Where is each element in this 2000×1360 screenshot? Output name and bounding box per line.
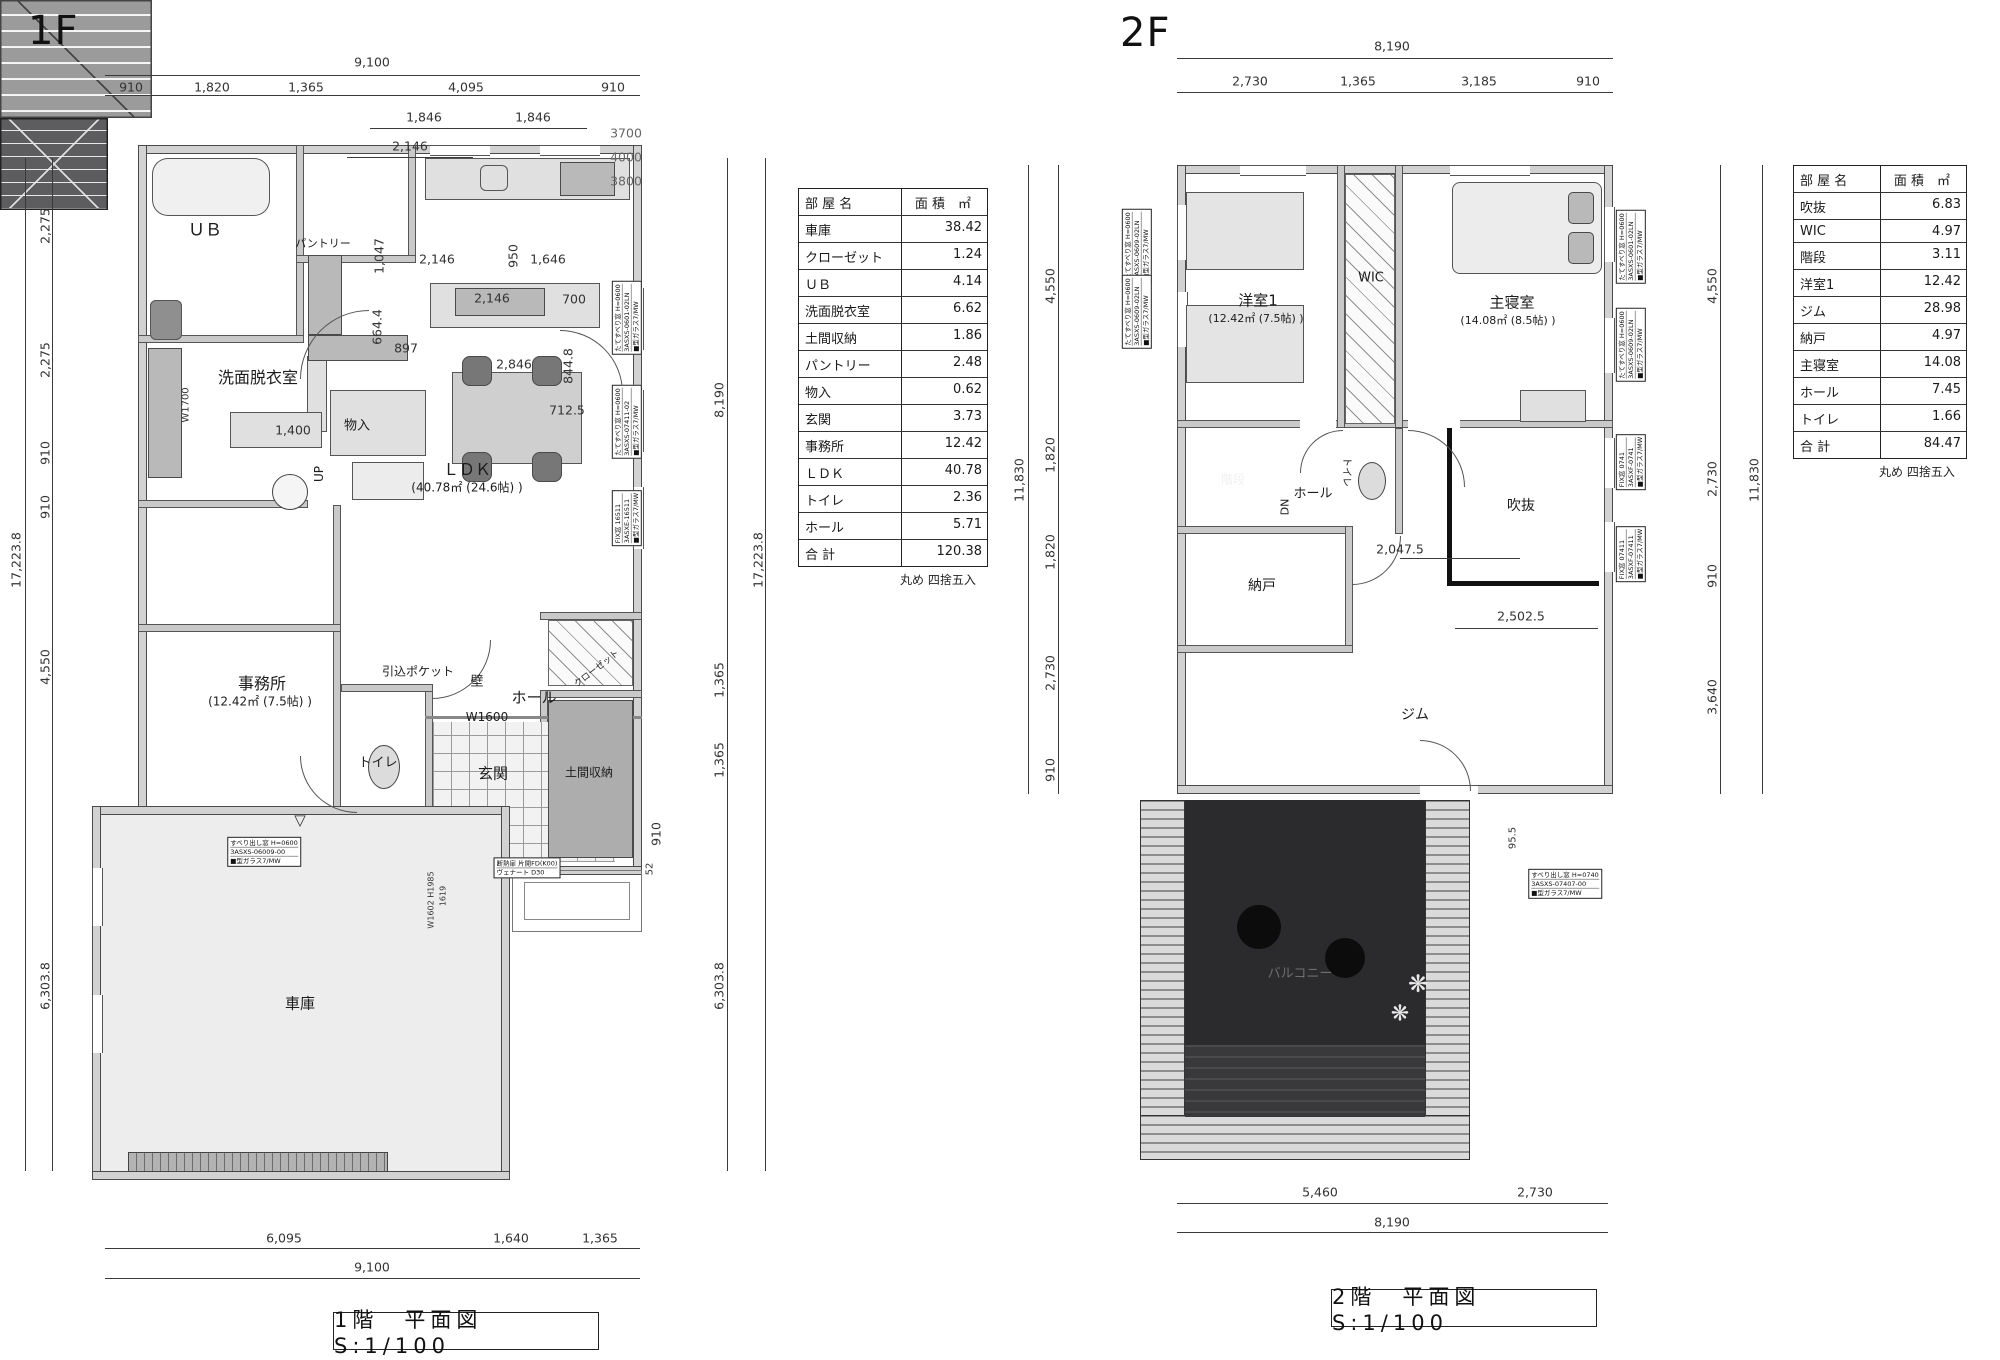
room-label: 洗面脱衣室 — [218, 364, 298, 388]
room-name-cell: 階段 — [1794, 243, 1881, 269]
floor2-title-block: 2階 平面図 S:1/100 — [1331, 1289, 1597, 1327]
area-value-cell: 38.42 — [902, 216, 987, 242]
area-value-cell: 2.36 — [902, 486, 987, 512]
dimension-label: 11,830 — [1747, 458, 1762, 502]
dimension-label: 2,730 — [1517, 1185, 1553, 1200]
room-name-cell: トイレ — [1794, 405, 1881, 431]
porch-step — [524, 882, 630, 920]
window — [1240, 165, 1306, 176]
room-label: ＵＢ — [188, 216, 222, 241]
door-arc — [1352, 536, 1401, 585]
dimension-line — [1177, 1203, 1608, 1204]
window — [1604, 207, 1615, 262]
dimension-label: 2,275 — [38, 208, 53, 244]
wall — [138, 145, 147, 813]
bathtub — [152, 158, 270, 216]
dimension-label: 4,550 — [1705, 268, 1720, 304]
room-name-cell: 部 屋 名 — [799, 189, 902, 215]
floor1-heading: 1F — [28, 8, 78, 54]
table-row: 納戸4.97 — [1794, 323, 1966, 350]
dimension-line — [105, 1278, 640, 1279]
table-row: 階段3.11 — [1794, 242, 1966, 269]
wic-closet — [1345, 174, 1395, 424]
area-value-cell: 84.47 — [1881, 432, 1966, 458]
bed — [1186, 192, 1304, 270]
balcony-rail-right — [1425, 800, 1470, 1160]
area-value-cell: 3.73 — [902, 405, 987, 431]
table-row: 車庫38.42 — [799, 215, 987, 242]
area-value-cell: 1.66 — [1881, 405, 1966, 431]
window-spec-tag: たてすべり窓 H=06003ASXS-0609-02LN■型ガラス7/MW — [1616, 308, 1646, 382]
dimension-label: 2,730 — [1043, 655, 1058, 691]
area-value-cell: 1.24 — [902, 243, 987, 269]
dimension-label: 4,550 — [1043, 268, 1058, 304]
pillow — [1568, 232, 1594, 264]
dimension-line — [1177, 1232, 1608, 1233]
table-row: 洗面脱衣室6.62 — [799, 296, 987, 323]
dimension-label: 52 — [645, 863, 656, 876]
table-row: クローゼット1.24 — [799, 242, 987, 269]
stove — [560, 162, 615, 196]
table-row: 洋室112.42 — [1794, 269, 1966, 296]
door-arc — [1408, 430, 1465, 487]
area-value-cell: 2.48 — [902, 351, 987, 377]
table-row: ホール7.45 — [1794, 377, 1966, 404]
wall — [92, 1171, 510, 1180]
bed — [1186, 305, 1304, 383]
sink — [480, 165, 508, 191]
garage-shutter — [128, 1152, 388, 1172]
dimension-label: 1,365 — [712, 742, 727, 778]
dimension-label: 910 — [1705, 564, 1720, 588]
wall — [1337, 165, 1345, 428]
window — [430, 145, 490, 156]
dresser — [1520, 390, 1586, 422]
chair — [462, 452, 492, 482]
area-value-cell: 6.62 — [902, 297, 987, 323]
room-name-cell: 部 屋 名 — [1794, 166, 1881, 192]
area-value-cell: 面 積 ㎡ — [902, 189, 987, 215]
table-row: 土間収納1.86 — [799, 323, 987, 350]
dimension-label: 950 — [506, 244, 521, 268]
rounding-note: 丸め 四捨五入 — [900, 571, 976, 588]
room-name-cell: 車庫 — [799, 216, 902, 242]
window-spec-tag: たてすべり窓 H=06003ASXS-0609-02LN■型ガラス7/MW — [1122, 209, 1152, 283]
table-row: ホール5.71 — [799, 512, 987, 539]
table-row: 事務所12.42 — [799, 431, 987, 458]
table-header-row: 部 屋 名面 積 ㎡ — [1794, 166, 1966, 192]
window — [1604, 318, 1615, 373]
room-name-cell: 土間収納 — [799, 324, 902, 350]
area-value-cell: 12.42 — [902, 432, 987, 458]
window-spec-tag: FIX窓 07413ASXF-0741■型ガラス7/MW — [1616, 434, 1646, 490]
floor1-area-table: 部 屋 名面 積 ㎡車庫38.42クローゼット1.24ＵＢ4.14洗面脱衣室6.… — [798, 188, 988, 567]
room-name-cell: 主寝室 — [1794, 351, 1881, 377]
dimension-line — [727, 158, 728, 1171]
planter — [1237, 905, 1281, 949]
floorplan-canvas: ▽ — [0, 0, 2000, 1360]
ceiling-fan — [272, 474, 308, 510]
window-spec-tag: すべり出し窓 H=07403ASXS-07407-00■型ガラス7/MW — [1528, 869, 1602, 899]
table-row: 合 計120.38 — [799, 539, 987, 566]
dimension-label: 5,460 — [1302, 1185, 1338, 1200]
dimension-label: 910 — [38, 495, 53, 519]
dimension-label: 3,640 — [1705, 679, 1720, 715]
table-row: 合 計84.47 — [1794, 431, 1966, 458]
wall — [1177, 526, 1353, 534]
door-gap — [1300, 420, 1336, 428]
room-label: 主寝室 — [1489, 292, 1534, 313]
dimension-label: 1,365 — [712, 662, 727, 698]
dimension-label: 2,146 — [419, 252, 455, 267]
wall — [341, 684, 433, 692]
area-value-cell: 4.97 — [1881, 220, 1966, 242]
window — [540, 145, 600, 156]
dimension-line — [1762, 165, 1763, 794]
room-name-cell: クローゼット — [799, 243, 902, 269]
window-spec-tag: たてすべり窓 H=06003ASXS-0601-02LN■型ガラス7/MW — [1616, 210, 1646, 284]
floor1-title-block: 1階 平面図 S:1/100 — [333, 1312, 599, 1350]
window — [92, 868, 103, 926]
rug — [352, 462, 424, 500]
table-row: ＬＤＫ40.78 — [799, 458, 987, 485]
dimension-label: W1700 — [181, 387, 192, 422]
dimension-label: 2,275 — [38, 342, 53, 378]
room-name-cell: 吹抜 — [1794, 193, 1881, 219]
dimension-line — [105, 1248, 640, 1249]
island-top — [455, 288, 545, 316]
dimension-label: 6,303.8 — [712, 962, 727, 1010]
room-name-cell: 納戸 — [1794, 324, 1881, 350]
planter — [1325, 938, 1365, 978]
pillow — [1568, 192, 1594, 224]
dimension-label: 1,646 — [530, 252, 566, 267]
dimension-line — [1028, 165, 1029, 794]
dimension-label: 910 — [38, 441, 53, 465]
floor2-area-table: 部 屋 名面 積 ㎡吹抜6.83WIC4.97階段3.11洋室112.42ジム2… — [1793, 165, 1967, 459]
table-row: 主寝室14.08 — [1794, 350, 1966, 377]
balcony-rail-bottom — [1140, 1115, 1470, 1160]
area-value-cell: 4.14 — [902, 270, 987, 296]
dimension-line — [1058, 165, 1059, 794]
window — [1604, 438, 1615, 488]
garage-door-mark: ▽ — [294, 811, 306, 829]
dimension-line — [1455, 628, 1598, 629]
dimension-label: 6,095 — [266, 1231, 302, 1246]
room-name-cell: 玄関 — [799, 405, 902, 431]
area-value-cell: 40.78 — [902, 459, 987, 485]
room-label: DN — [1279, 499, 1292, 516]
area-value-cell: 7.45 — [1881, 378, 1966, 404]
room-name-cell: 合 計 — [799, 540, 902, 566]
plant-icon: ❋ — [1391, 1002, 1409, 1027]
dimension-label: 6,303.8 — [38, 962, 53, 1010]
window-spec-tag: FIX窓 074113ASXF-07411■型ガラス7/MW — [1616, 526, 1646, 582]
chair — [462, 356, 492, 386]
table-header-row: 部 屋 名面 積 ㎡ — [799, 189, 987, 215]
wall — [1395, 165, 1403, 428]
door-arc — [560, 330, 623, 393]
table-row: 玄関3.73 — [799, 404, 987, 431]
table-row: 吹抜6.83 — [1794, 192, 1966, 219]
balcony-rail-left — [1140, 800, 1185, 1160]
dimension-label: 11,830 — [1012, 458, 1027, 502]
dimension-label: 1,820 — [1043, 534, 1058, 570]
rounding-note: 丸め 四捨五入 — [1879, 463, 1955, 480]
table-row: トイレ2.36 — [799, 485, 987, 512]
table-row: ジム28.98 — [1794, 296, 1966, 323]
wall — [540, 690, 642, 698]
dimension-label: 2,846 — [496, 357, 532, 372]
dimension-label: 4,550 — [38, 649, 53, 685]
table-row: 物入0.62 — [799, 377, 987, 404]
toilet — [1358, 462, 1386, 500]
window — [1604, 522, 1615, 572]
dimension-label: 17,223.8 — [9, 532, 24, 588]
room-label: 階段 — [1221, 471, 1245, 488]
room-name-cell: 洗面脱衣室 — [799, 297, 902, 323]
room-label: (12.42㎡ (7.5帖) ) — [208, 693, 312, 710]
balcony-deck — [1185, 1045, 1425, 1117]
dimension-label: 8,190 — [1374, 1215, 1410, 1230]
dimension-line — [1400, 558, 1520, 559]
door-arc — [1300, 430, 1343, 473]
dimension-line — [765, 158, 766, 1171]
table-row: トイレ1.66 — [1794, 404, 1966, 431]
garage-floor — [101, 815, 501, 1171]
door-arc — [300, 756, 357, 813]
area-value-cell: 3.11 — [1881, 243, 1966, 269]
floor1-plan: ▽ — [0, 0, 2000, 118]
plant-icon: ❋ — [1408, 970, 1428, 998]
dimension-label: 910 — [1043, 758, 1058, 782]
dimension-line — [25, 158, 26, 1171]
wall — [1177, 785, 1613, 794]
floor2-heading: 2F — [1120, 10, 1170, 56]
window — [1450, 165, 1530, 176]
dimension-label: 95.5 — [1508, 827, 1519, 849]
laundry — [150, 300, 182, 340]
wall — [92, 806, 101, 1180]
room-name-cell: WIC — [1794, 220, 1881, 242]
window — [92, 995, 103, 1053]
room-name-cell: トイレ — [799, 486, 902, 512]
area-value-cell: 14.08 — [1881, 351, 1966, 377]
chair — [532, 356, 562, 386]
dimension-label: 2,502.5 — [1497, 609, 1545, 624]
wall — [1395, 428, 1403, 534]
dimension-label: 9,100 — [354, 1260, 390, 1275]
window — [633, 487, 644, 549]
door-arc — [432, 640, 491, 699]
wall — [138, 624, 341, 632]
area-value-cell: 面 積 ㎡ — [1881, 166, 1966, 192]
toilet — [368, 745, 400, 789]
room-name-cell: 物入 — [799, 378, 902, 404]
closet-1400 — [230, 412, 322, 448]
dimension-label: 1,820 — [1043, 437, 1058, 473]
dimension-label: 910 — [649, 822, 664, 846]
room-name-cell: 合 計 — [1794, 432, 1881, 458]
wall — [296, 145, 304, 343]
area-value-cell: 12.42 — [1881, 270, 1966, 296]
void-border — [1447, 581, 1599, 586]
wall — [501, 806, 510, 1180]
area-value-cell: 28.98 — [1881, 297, 1966, 323]
washbasin — [148, 348, 182, 478]
dimension-label: 17,223.8 — [751, 532, 766, 588]
dimension-label: 1,640 — [493, 1231, 529, 1246]
room-name-cell: ホール — [1794, 378, 1881, 404]
room-name-cell: 事務所 — [799, 432, 902, 458]
room-label: 事務所 — [238, 670, 286, 694]
room-name-cell: ホール — [799, 513, 902, 539]
dimension-line — [52, 158, 53, 1171]
sofa — [330, 390, 426, 456]
dimension-label: 2,730 — [1705, 461, 1720, 497]
area-value-cell: 120.38 — [902, 540, 987, 566]
closet — [548, 620, 633, 686]
dimension-line — [1720, 165, 1721, 794]
room-name-cell: 洋室1 — [1794, 270, 1881, 296]
window — [633, 390, 644, 452]
door-arc — [1420, 740, 1471, 791]
table-row: ＵＢ4.14 — [799, 269, 987, 296]
doma-shelf — [548, 700, 633, 858]
area-value-cell: 6.83 — [1881, 193, 1966, 219]
area-value-cell: 0.62 — [902, 378, 987, 404]
room-label: 吹抜 — [1507, 495, 1535, 515]
dimension-label: 1,365 — [582, 1231, 618, 1246]
room-name-cell: ＬＤＫ — [799, 459, 902, 485]
wall — [1177, 645, 1353, 653]
room-label: UP — [312, 466, 326, 482]
table-row: パントリー2.48 — [799, 350, 987, 377]
window — [633, 288, 644, 350]
room-label: (14.08㎡ (8.5帖) ) — [1460, 312, 1555, 328]
table-row: WIC4.97 — [1794, 219, 1966, 242]
room-name-cell: ＵＢ — [799, 270, 902, 296]
area-value-cell: 4.97 — [1881, 324, 1966, 350]
room-label: ジム — [1401, 704, 1429, 724]
dimension-label: 8,190 — [712, 382, 727, 418]
wall — [408, 145, 416, 263]
room-label: 納戸 — [1248, 575, 1276, 595]
window-spec-tag: たてすべり窓 H=06003ASXS-0609-02LN■型ガラス7/MW — [1122, 275, 1152, 349]
room-name-cell: パントリー — [799, 351, 902, 377]
room-name-cell: ジム — [1794, 297, 1881, 323]
balcony-floor — [1185, 800, 1425, 1045]
door-gap — [1408, 420, 1460, 428]
stairs-down — [0, 118, 108, 210]
chair — [532, 452, 562, 482]
wall — [540, 612, 642, 620]
area-value-cell: 5.71 — [902, 513, 987, 539]
room-label: ホール — [1293, 483, 1332, 502]
area-value-cell: 1.86 — [902, 324, 987, 350]
